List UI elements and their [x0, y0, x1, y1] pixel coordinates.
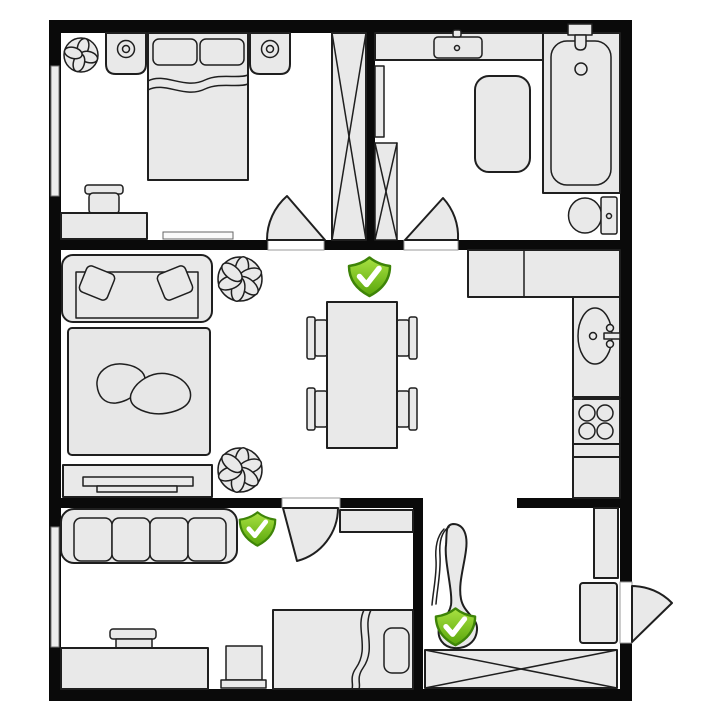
stove[interactable]: [573, 399, 620, 444]
kitchen-sink-counter[interactable]: [573, 297, 620, 397]
chair-back: [307, 317, 315, 359]
desk-top: [61, 648, 208, 689]
wall-hall-right: [458, 240, 620, 250]
sink-faucet-icon: [453, 30, 461, 37]
bathroom-shelf[interactable]: [375, 66, 384, 137]
bathtub[interactable]: [543, 24, 620, 193]
threshold-bedroom: [268, 240, 324, 250]
chair-back: [307, 388, 315, 430]
living-sofa[interactable]: [62, 255, 212, 322]
chair-seat: [89, 193, 119, 214]
bath-mat[interactable]: [475, 76, 530, 172]
tv-stand[interactable]: [63, 465, 212, 497]
chair-back: [409, 317, 417, 359]
kitchen-counter-strip[interactable]: [573, 444, 620, 457]
pillow: [384, 628, 409, 673]
second-sofa[interactable]: [61, 509, 237, 563]
wall-lower-left: [61, 498, 282, 508]
bathroom-cabinet[interactable]: [375, 143, 397, 240]
double-bed[interactable]: [148, 33, 248, 180]
dining-table: [327, 302, 397, 448]
pillow: [200, 39, 244, 65]
kitchen-counter-top[interactable]: [468, 250, 620, 297]
threshold-bathroom: [404, 240, 458, 250]
pillow: [153, 39, 197, 65]
tv-icon: [83, 477, 193, 486]
wall-lower-mid: [340, 498, 423, 508]
threshold-second-room: [282, 498, 340, 508]
bathroom-counter[interactable]: [375, 30, 543, 60]
floor-plan-svg: [0, 0, 720, 720]
chair-seat: [397, 320, 409, 356]
sofa-cushion: [150, 518, 188, 561]
chair-seat: [397, 391, 409, 427]
wall-room-entry-divider: [413, 498, 423, 689]
sofa-cushion: [188, 518, 226, 561]
wall-right-upper: [620, 20, 632, 582]
chair-back: [409, 388, 417, 430]
toilet-tank: [601, 197, 617, 234]
wardrobe-entry[interactable]: [425, 650, 617, 688]
tub-drain: [575, 63, 587, 75]
entry-counter[interactable]: [594, 508, 618, 578]
kitchen-faucet-icon: [604, 333, 620, 339]
bathroom-sink: [434, 37, 482, 58]
wardrobe-bedroom[interactable]: [332, 33, 366, 240]
nightstand-right[interactable]: [250, 33, 290, 74]
nightstand-left[interactable]: [106, 33, 146, 74]
living-rug[interactable]: [68, 328, 210, 455]
window-bedroom: [51, 66, 59, 196]
wall-shelf[interactable]: [340, 510, 413, 532]
wall-hall-mid: [324, 240, 405, 250]
desk-top: [61, 213, 147, 239]
tub-faucet-icon: [568, 24, 592, 35]
doormat[interactable]: [580, 583, 617, 643]
sink-drain: [590, 333, 597, 340]
sofa-cushion: [74, 518, 112, 561]
wall-bottom: [49, 689, 632, 701]
floor-plan-stage: [0, 0, 720, 720]
wall-top: [49, 20, 632, 33]
wall-hall-left: [61, 240, 268, 250]
sofa-cushion: [112, 518, 150, 561]
wall-lower-right: [517, 498, 620, 508]
toilet[interactable]: [569, 197, 618, 234]
chair-seat: [315, 320, 327, 356]
stool[interactable]: [221, 646, 266, 688]
kitchen-counter-lower[interactable]: [573, 457, 620, 498]
toilet-bowl: [569, 198, 602, 233]
chair-back: [110, 629, 156, 639]
wall-bed-bath-divider: [366, 20, 375, 250]
threshold-entrance: [620, 582, 632, 643]
window-second-room: [51, 527, 59, 647]
potted-plant-icon[interactable]: [63, 37, 99, 73]
wall-bench[interactable]: [163, 232, 233, 239]
single-bed[interactable]: [273, 610, 413, 689]
chair-seat: [315, 391, 327, 427]
